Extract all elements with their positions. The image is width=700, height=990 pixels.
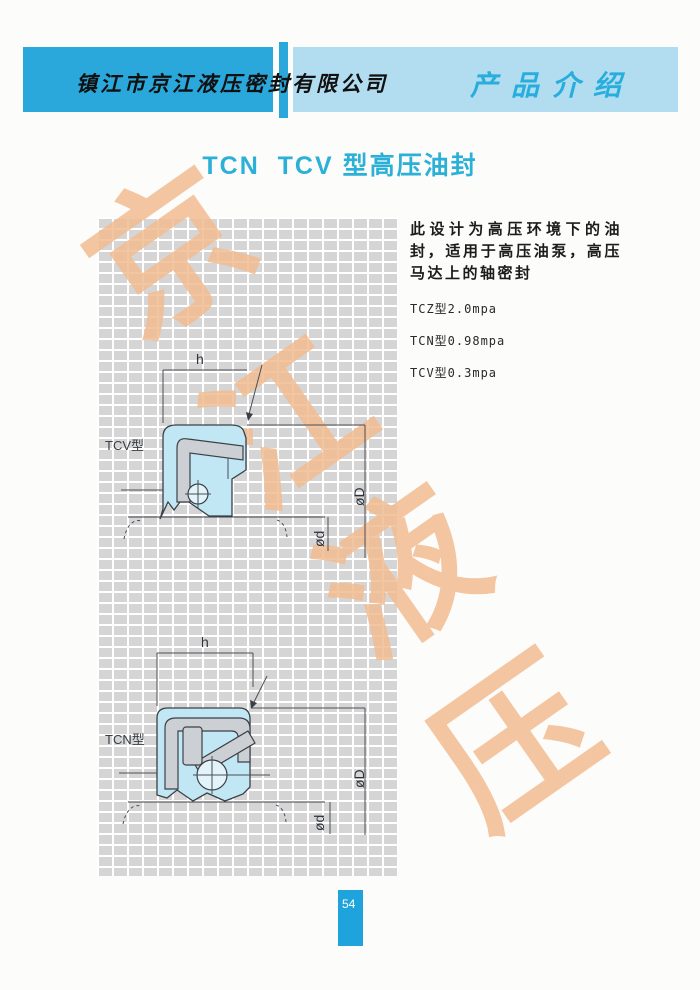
seal-diagrams: h øD ød TCV型 (97, 217, 398, 876)
tcn-label: TCN型 (105, 732, 145, 747)
tcv-diagram: h øD ød TCV型 (105, 351, 367, 558)
info-column: 此设计为高压环境下的油封，适用于高压油泵，高压马达上的轴密封 TCZ型2.0mp… (410, 219, 622, 381)
company-name: 镇江市京江液压密封有限公司 (76, 68, 406, 98)
spec-tcz: TCZ型2.0mpa (410, 300, 622, 317)
tcv-dim-od: øD (351, 487, 367, 506)
tcn-diagram: h øD ød T (105, 634, 367, 835)
catalog-page: 京 江 液 压 镇江市京江液压密封有限公司 产品介绍 TCN TCV 型高压油封… (0, 0, 700, 990)
tcn-dim-od: øD (351, 769, 367, 788)
watermark-char: 压 (410, 638, 626, 854)
tcv-dim-id: ød (311, 531, 327, 547)
tcv-dim-h: h (196, 351, 204, 367)
section-title: 产品介绍 (470, 64, 634, 104)
tcn-dim-h: h (201, 634, 209, 650)
page-title: TCN TCV 型高压油封 (0, 146, 680, 182)
spec-tcv: TCV型0.3mpa (410, 364, 622, 381)
description-text: 此设计为高压环境下的油封，适用于高压油泵，高压马达上的轴密封 (410, 219, 622, 285)
tcn-dim-id: ød (311, 815, 327, 831)
tcv-label: TCV型 (105, 438, 144, 453)
spec-tcn: TCN型0.98mpa (410, 332, 622, 349)
page-number: 54 (338, 890, 363, 946)
